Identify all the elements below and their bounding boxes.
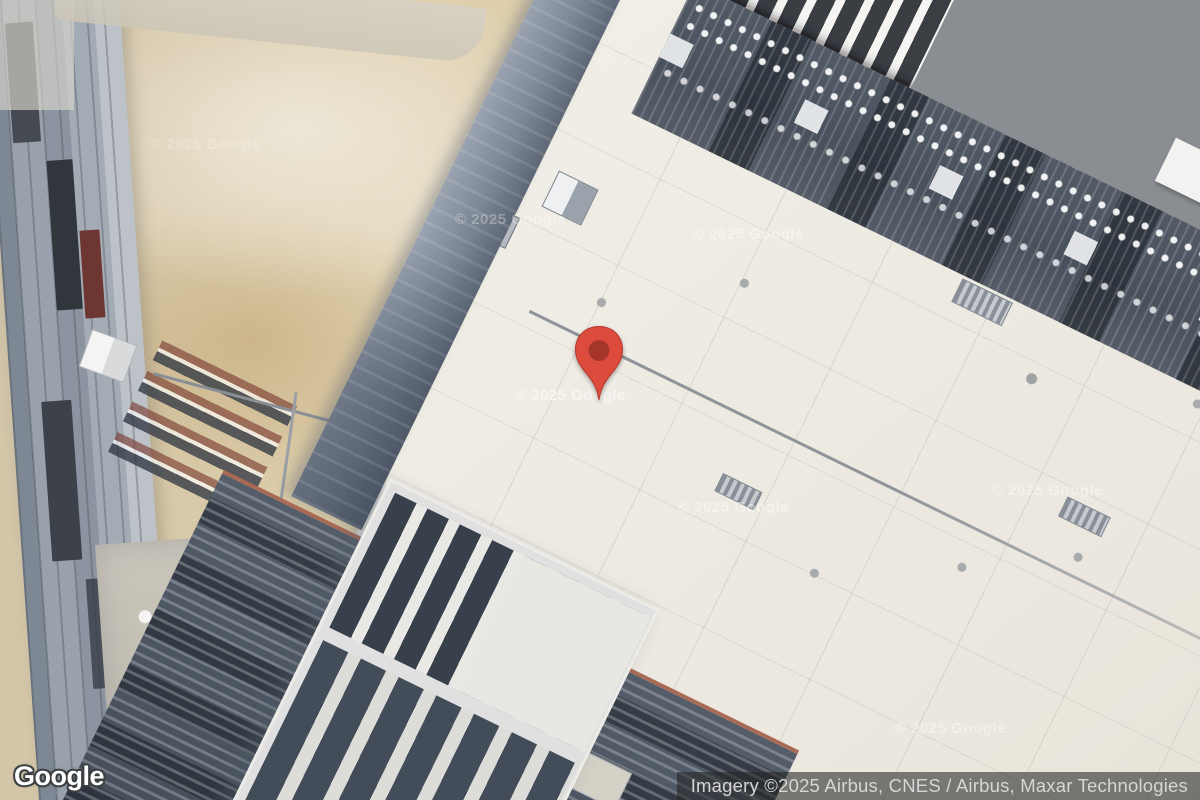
google-watermark: © 2025 Google (455, 211, 566, 228)
attribution-bar: Imagery ©2025 Airbus, CNES / Airbus, Max… (677, 772, 1200, 800)
google-watermark: © 2025 Google (678, 499, 789, 516)
map-marker-icon[interactable] (573, 325, 625, 403)
google-watermark: © 2025 Google (895, 720, 1006, 737)
imagery-attribution: Imagery ©2025 Airbus, CNES / Airbus, Max… (691, 775, 1188, 797)
rail-car (41, 400, 82, 562)
map-canvas[interactable]: © 2025 Google © 2025 Google © 2025 Googl… (0, 0, 1200, 800)
marker-hole (589, 340, 610, 361)
marker-body (576, 327, 623, 401)
google-logo[interactable]: Google (14, 761, 104, 792)
google-watermark: © 2025 Google (992, 482, 1103, 499)
google-watermark: © 2025 Google (150, 136, 261, 153)
rail-car-red (79, 229, 105, 318)
google-watermark: © 2025 Google (693, 226, 804, 243)
rail-car (46, 159, 82, 310)
small-building (1155, 138, 1200, 213)
